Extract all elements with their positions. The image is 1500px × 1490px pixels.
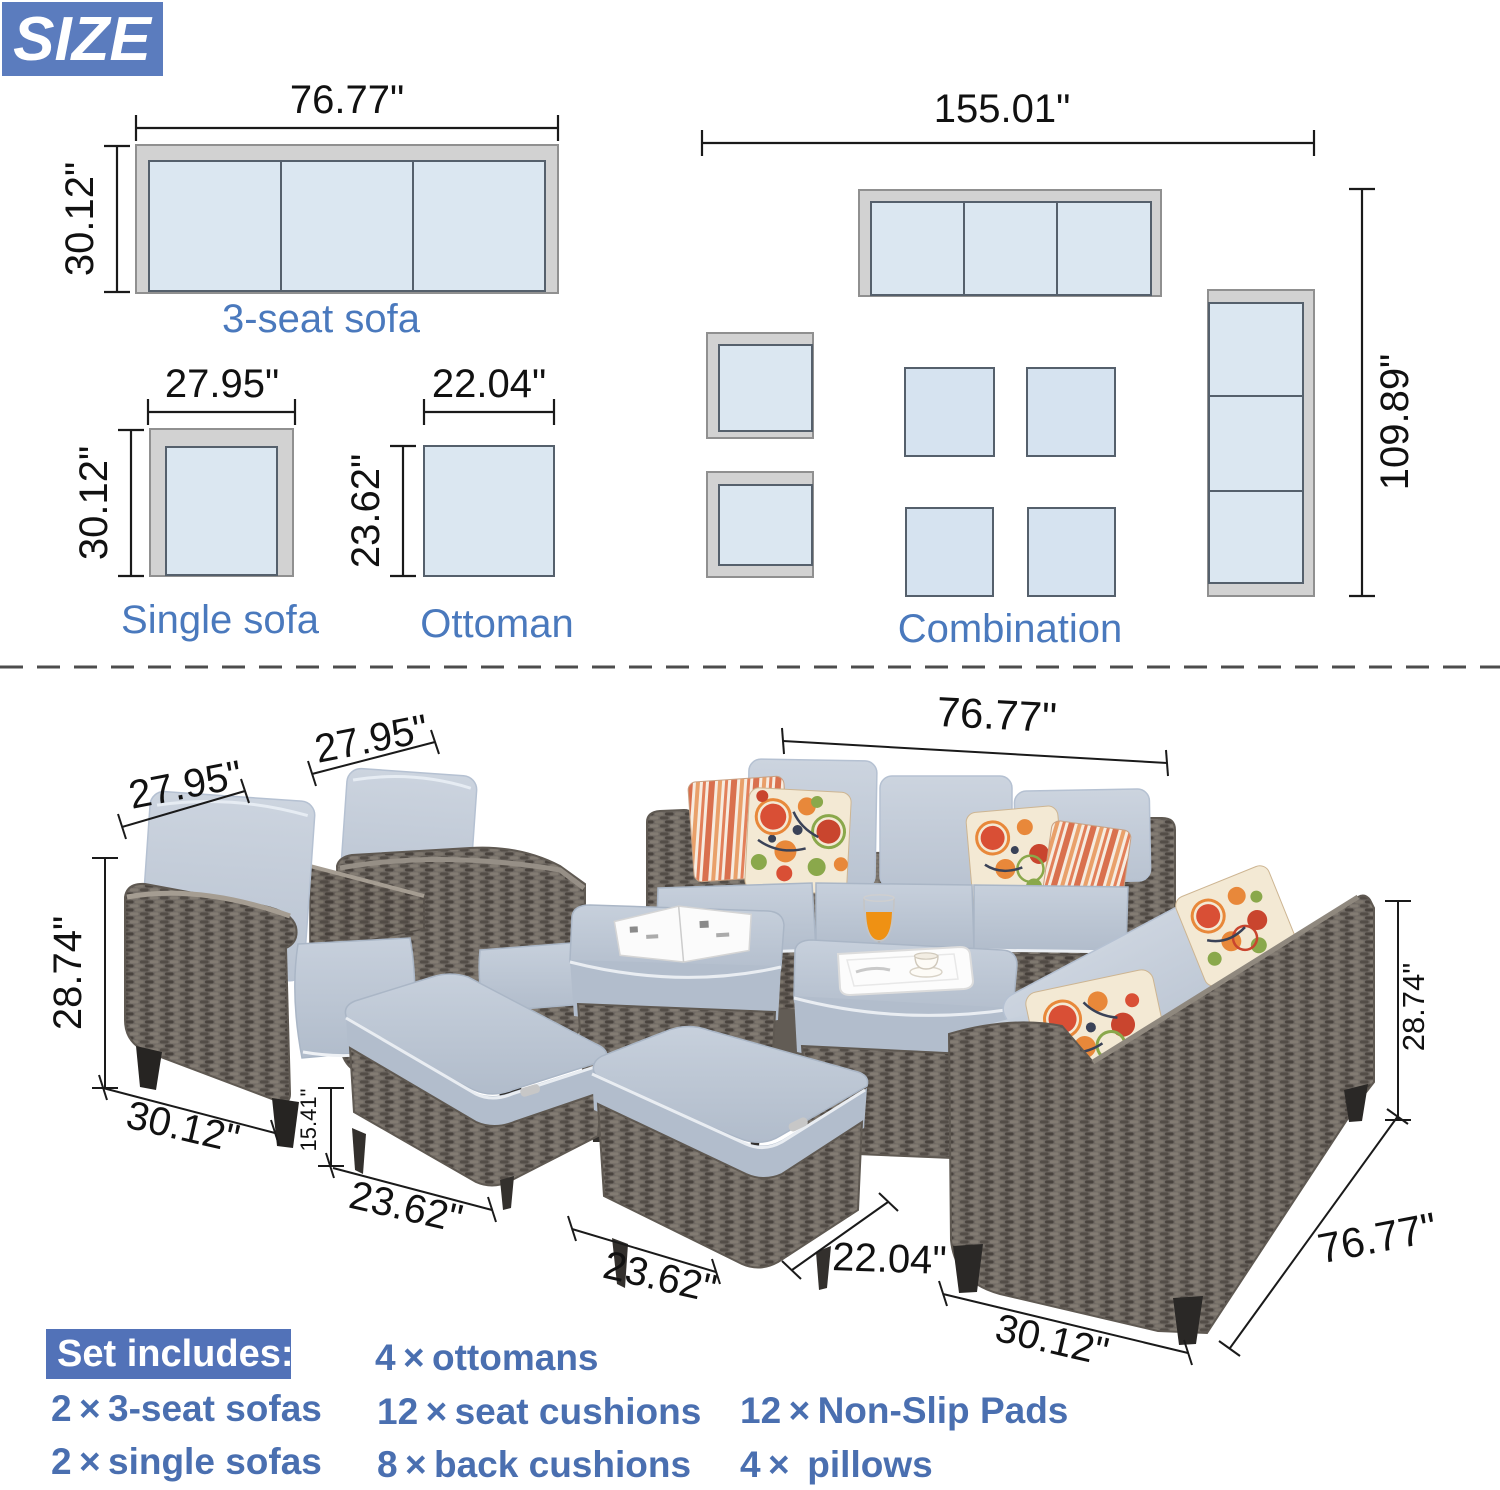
svg-text:30.12": 30.12"	[58, 162, 102, 276]
svg-text:Combination: Combination	[898, 607, 1123, 651]
svg-text:Set includes:: Set includes:	[57, 1333, 294, 1375]
svg-text:76.77": 76.77"	[1314, 1203, 1441, 1272]
svg-text:28.74": 28.74"	[1396, 963, 1431, 1052]
svg-text:27.95": 27.95"	[165, 362, 279, 406]
svg-text:4 × pillows: 4 × pillows	[740, 1444, 933, 1485]
svg-text:3-seat sofa: 3-seat sofa	[222, 297, 421, 341]
svg-text:22.04": 22.04"	[832, 1235, 948, 1283]
svg-text:30.12": 30.12"	[122, 1093, 243, 1162]
svg-text:Single sofa: Single sofa	[121, 598, 320, 642]
svg-text:4 × ottomans: 4 × ottomans	[375, 1337, 599, 1378]
svg-text:76.77": 76.77"	[290, 78, 404, 122]
svg-text:23.62": 23.62"	[345, 1173, 466, 1242]
svg-text:8 × back cushions: 8 × back cushions	[377, 1444, 691, 1485]
svg-text:155.01": 155.01"	[934, 87, 1071, 131]
svg-text:27.95": 27.95"	[311, 707, 432, 772]
svg-text:15.41": 15.41"	[296, 1089, 321, 1152]
svg-text:Ottoman: Ottoman	[420, 602, 573, 646]
svg-text:12 × seat cushions: 12 × seat cushions	[377, 1391, 701, 1432]
svg-text:28.74": 28.74"	[46, 916, 90, 1030]
svg-text:23.62": 23.62"	[599, 1243, 720, 1312]
svg-text:23.62": 23.62"	[344, 454, 388, 568]
svg-text:2 × single sofas: 2 × single sofas	[51, 1441, 322, 1482]
svg-text:2 × 3-seat sofas: 2 × 3-seat sofas	[51, 1388, 322, 1429]
svg-text:SIZE: SIZE	[13, 5, 152, 74]
svg-text:22.04": 22.04"	[432, 362, 546, 406]
svg-text:76.77": 76.77"	[936, 688, 1058, 741]
svg-text:30.12": 30.12"	[72, 446, 116, 560]
svg-text:12 × Non-Slip Pads: 12 × Non-Slip Pads	[740, 1390, 1068, 1431]
svg-text:109.89": 109.89"	[1373, 354, 1417, 491]
